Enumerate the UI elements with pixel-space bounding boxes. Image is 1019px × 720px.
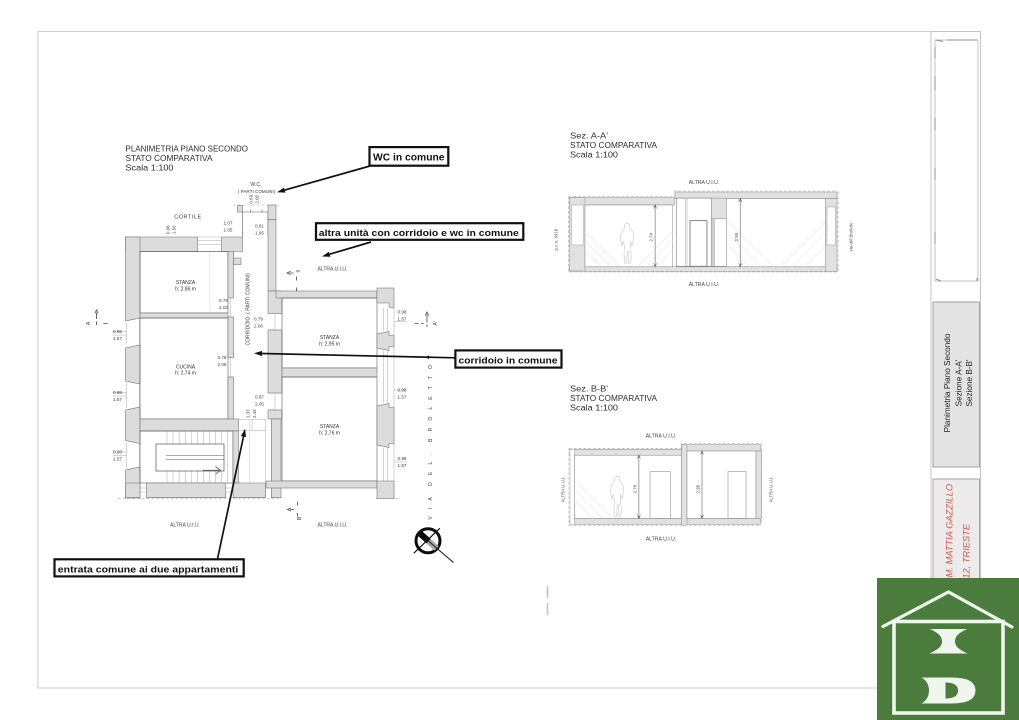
- svg-text:( PARTI COMUNI): ( PARTI COMUNI): [238, 189, 276, 194]
- svg-text:2.76: 2.76: [633, 484, 638, 493]
- svg-text:2.06: 2.06: [254, 324, 263, 329]
- svg-text:2.95: 2.95: [696, 484, 701, 493]
- svg-text:1.57: 1.57: [113, 457, 122, 462]
- svg-text:p.c.n. 6918: p.c.n. 6918: [554, 228, 559, 250]
- svg-text:0.98: 0.98: [398, 456, 407, 461]
- svg-text:0.81: 0.81: [255, 224, 264, 229]
- svg-text:STANZA: STANZA: [320, 424, 340, 430]
- svg-text:STATO COMPARATIVA: STATO COMPARATIVA: [570, 394, 658, 403]
- svg-text:h: 2,74 m: h: 2,74 m: [175, 371, 196, 377]
- svg-text:1.57: 1.57: [398, 317, 407, 322]
- svg-text:entrata comune ai due appartam: entrata comune ai due appartamenti: [58, 565, 239, 576]
- svg-text:0.98: 0.98: [113, 390, 122, 395]
- svg-text:0.98: 0.98: [398, 310, 407, 315]
- svg-text:b: b: [296, 270, 302, 273]
- svg-text:ALTRA U.I.U.: ALTRA U.I.U.: [769, 476, 774, 502]
- svg-text:CORRIDOIO ( PARTI COMUNI): CORRIDOIO ( PARTI COMUNI): [246, 273, 252, 346]
- svg-text:1.57: 1.57: [398, 395, 407, 400]
- svg-text:0.79: 0.79: [254, 317, 263, 322]
- svg-text:ALTRA U.I.U.: ALTRA U.I.U.: [689, 282, 720, 288]
- svg-text:0.98: 0.98: [113, 329, 122, 334]
- svg-text:via del Broletto: via del Broletto: [849, 222, 854, 252]
- svg-text:1.07: 1.07: [224, 221, 233, 226]
- svg-text:Scala 1:100: Scala 1:100: [570, 403, 619, 412]
- svg-text:A': A': [433, 321, 439, 325]
- svg-text:2.05: 2.05: [218, 362, 227, 367]
- svg-text:V I A D E L . B R O L E T T: V I A D E L . B R O L E T T O: [428, 362, 434, 519]
- svg-text:0.98: 0.98: [166, 225, 171, 234]
- svg-text:STATO COMPARATIVA: STATO COMPARATIVA: [570, 141, 658, 150]
- svg-text:2.43: 2.43: [252, 409, 257, 418]
- svg-text:Sez. B-B': Sez. B-B': [570, 384, 609, 393]
- svg-text:ALTRA U.I.U.: ALTRA U.I.U.: [170, 523, 200, 529]
- svg-text:1.56: 1.56: [172, 225, 177, 234]
- svg-text:2.74: 2.74: [649, 232, 654, 241]
- svg-text:PLANIMETRIA PIANO SECONDO: PLANIMETRIA PIANO SECONDO: [126, 144, 249, 153]
- svg-text:0.69: 0.69: [249, 194, 254, 203]
- svg-text:STATO COMPARATIVA: STATO COMPARATIVA: [126, 154, 214, 163]
- svg-text:0.78: 0.78: [218, 355, 227, 360]
- svg-text:ALTRA U.I.U.: ALTRA U.I.U.: [646, 434, 677, 440]
- svg-text:ALTRA U.I.U.: ALTRA U.I.U.: [318, 267, 348, 273]
- svg-text:0.87: 0.87: [255, 395, 264, 400]
- svg-text:CORTILE: CORTILE: [174, 215, 201, 221]
- svg-text:CUCINA: CUCINA: [176, 364, 196, 370]
- svg-text:corridoio in comune: corridoio in comune: [459, 356, 558, 367]
- svg-text:h: 2,76 m: h: 2,76 m: [319, 430, 340, 436]
- svg-text:0.98: 0.98: [113, 450, 122, 455]
- svg-text:h: 2,95 m: h: 2,95 m: [319, 341, 340, 347]
- svg-text:2.00: 2.00: [255, 194, 260, 203]
- svg-text:altra unità con corridoio e wc: altra unità con corridoio e wc in comune: [319, 228, 519, 238]
- svg-text:ALTRA U.I.U.: ALTRA U.I.U.: [646, 536, 677, 542]
- svg-text:1.33: 1.33: [246, 409, 251, 418]
- svg-text:1.65: 1.65: [224, 228, 233, 233]
- svg-text:1.95: 1.95: [255, 231, 264, 236]
- svg-text:1.57: 1.57: [398, 463, 407, 468]
- svg-text:ALTRA U.I.U.: ALTRA U.I.U.: [689, 180, 720, 186]
- svg-text:1.57: 1.57: [113, 336, 122, 341]
- svg-text:Sezione B-B': Sezione B-B': [965, 359, 974, 407]
- svg-text:STANZA: STANZA: [320, 335, 340, 341]
- svg-text:2.02: 2.02: [219, 305, 228, 310]
- svg-text:0.98: 0.98: [398, 388, 407, 393]
- svg-text:Sez. A-A': Sez. A-A': [570, 131, 609, 140]
- svg-text:h: 2.86 m: h: 2.86 m: [175, 286, 196, 292]
- svg-text:WC in comune: WC in comune: [373, 153, 445, 164]
- svg-text:W.C.: W.C.: [250, 182, 261, 188]
- svg-text:1.57: 1.57: [113, 397, 122, 402]
- svg-text:Sezione A-A': Sezione A-A': [955, 359, 964, 406]
- svg-text:2.05: 2.05: [255, 402, 264, 407]
- svg-text:2.95: 2.95: [734, 232, 739, 241]
- svg-text:Scala 1:100: Scala 1:100: [126, 163, 175, 172]
- svg-text:ALTRA U.I.U.: ALTRA U.I.U.: [561, 476, 566, 502]
- svg-text:Planimetria Piano Secondo: Planimetria Piano Secondo: [943, 333, 952, 432]
- svg-text:Scala 1:100: Scala 1:100: [570, 150, 619, 159]
- svg-text:ALTRA U.I.U.: ALTRA U.I.U.: [318, 523, 348, 529]
- svg-text:STANZA: STANZA: [176, 280, 196, 286]
- svg-text:0.79: 0.79: [219, 298, 228, 303]
